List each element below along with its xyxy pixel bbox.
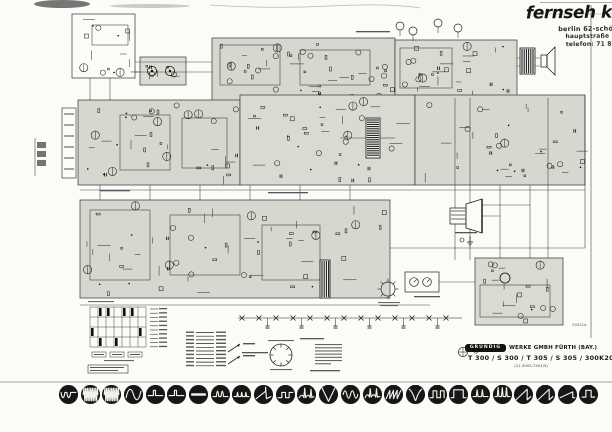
dealer-stamp-address: berlin 62-schö. hauptstraße 1 telefon: 7… [526,25,612,49]
oscillogram-icon [80,384,101,405]
scope-item: 3 [101,384,122,391]
scope-item: 16 [427,384,448,391]
stamp-phone-line: telefon: 71 80 [526,40,612,48]
oscillogram-icon [340,384,361,405]
oscillogram-icon [166,384,187,405]
scope-item: 23 [578,384,599,391]
oscillogram-icon [231,384,252,405]
scope-item: 5a [166,384,187,391]
scope-item: 9 [275,384,296,391]
dealer-stamp-name: fernseh kr [526,3,612,24]
scope-item: 4 [123,384,144,391]
oscillogram-icon [535,384,556,405]
scope-item: 7 [231,384,252,391]
schematic-sheet: fernseh kr berlin 62-schö. hauptstraße 1… [0,0,612,432]
oscillogram-icon [427,384,448,405]
title-block: GRUNDIG WERKE GMBH FÜRTH (BAY.) T 300 / … [468,344,594,368]
meter-box [405,272,439,292]
scope-item: 1 [58,384,79,391]
scope-item: 17 [448,384,469,391]
scope-item: 5 [145,384,166,391]
document-part-number: (21-3003-7501/5) [468,363,594,368]
oscillogram-icon [145,384,166,405]
oscillogram-icon [470,384,491,405]
voltage-legend [186,332,226,367]
socket-legend-circle [268,340,294,370]
scope-item: 18 [470,384,491,391]
scope-item: 10 [296,384,317,391]
model-numbers: T 300 / S 300 / T 305 / S 305 / 300K20 [468,354,594,362]
scope-item: 6 [188,384,209,391]
scope-item: 21 [535,384,556,391]
scope-item: 19 [492,384,513,391]
oscillogram-icon [383,384,404,405]
scope-item: 15 [405,384,426,391]
if-strip-section [212,38,395,101]
oscillogram-icon [296,384,317,405]
oscillogram-icon [362,384,383,405]
scope-item: 2 [80,384,101,391]
tuner-section [72,14,142,78]
oscillogram-icon [318,384,339,405]
oscillogram-icon [492,384,513,405]
deflection-section [80,200,390,298]
oscillogram-icon [58,384,79,405]
sound-section [395,40,517,98]
scope-item: 6a [210,384,231,391]
scope-item: 22 [557,384,578,391]
oscillogram-icon [448,384,469,405]
crt-wiring-chain [238,316,462,329]
arrow-symbol-legend [228,343,255,364]
video-section [78,100,240,185]
oscillogram-icon [405,384,426,405]
scope-item: 8 [253,384,274,391]
oscillogram-icon [188,384,209,405]
oscillogram-icon [557,384,578,405]
scope-item: 13 [362,384,383,391]
scope-item: 11 [318,384,339,391]
connector-strip [62,108,76,178]
agc-section [415,95,588,185]
drawing-number: 29021a [572,322,586,327]
oscillogram-icon [101,384,122,405]
scope-item: 20 [513,384,534,391]
oscillogram-icon [578,384,599,405]
filter-capacitors [396,19,462,41]
dealer-stamp: fernseh kr berlin 62-schö. hauptstraße 1… [526,3,612,49]
oscillogram-icon [513,384,534,405]
speaker-icon [541,47,555,75]
oscillogram-icon [253,384,274,405]
sync-section [240,95,415,185]
oscillogram-icon [275,384,296,405]
alignment-grid-table [88,301,167,373]
title-block-row: GRUNDIG WERKE GMBH FÜRTH (BAY.) [468,344,594,352]
converter-section [140,57,186,85]
grundig-logo-badge: GRUNDIG [465,344,506,352]
oscillogram-icon [123,384,144,405]
scope-strip: 1 2 3 4 5 5a 6 6a [0,384,612,430]
service-notes [315,344,342,364]
scope-item: 14 [383,384,404,391]
oscillogram-icon [210,384,231,405]
manufacturer-name: WERKE GMBH FÜRTH (BAY.) [509,345,597,351]
scope-item: 12 [340,384,361,391]
